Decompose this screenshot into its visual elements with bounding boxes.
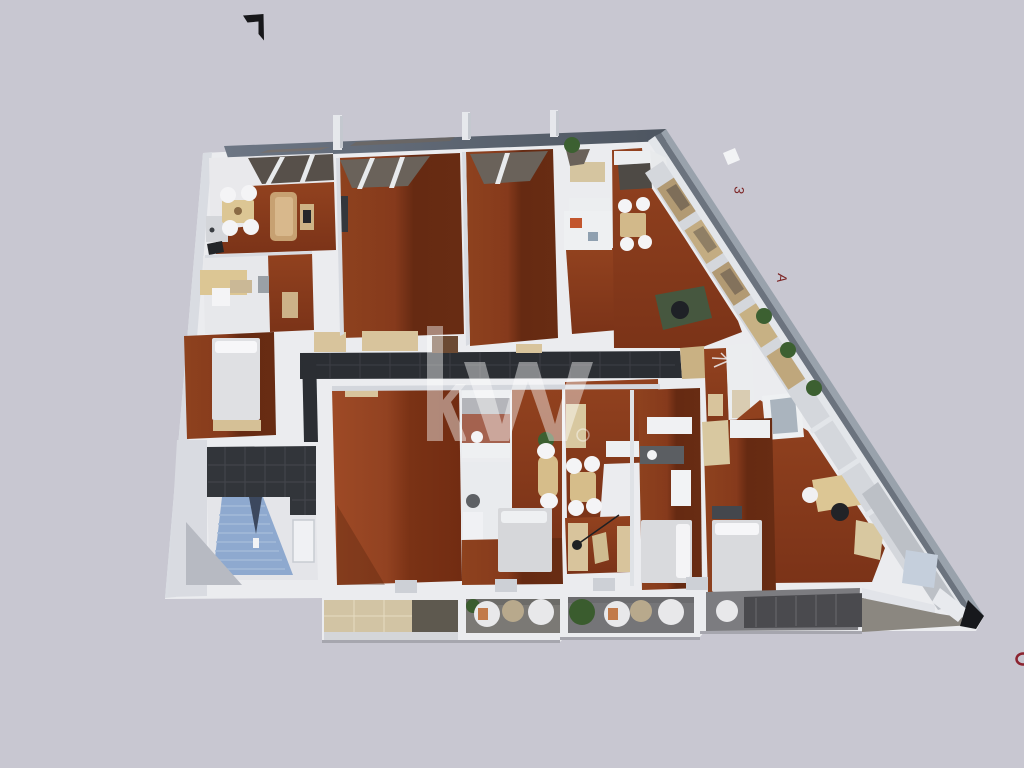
svg-text:A: A [774,273,790,284]
